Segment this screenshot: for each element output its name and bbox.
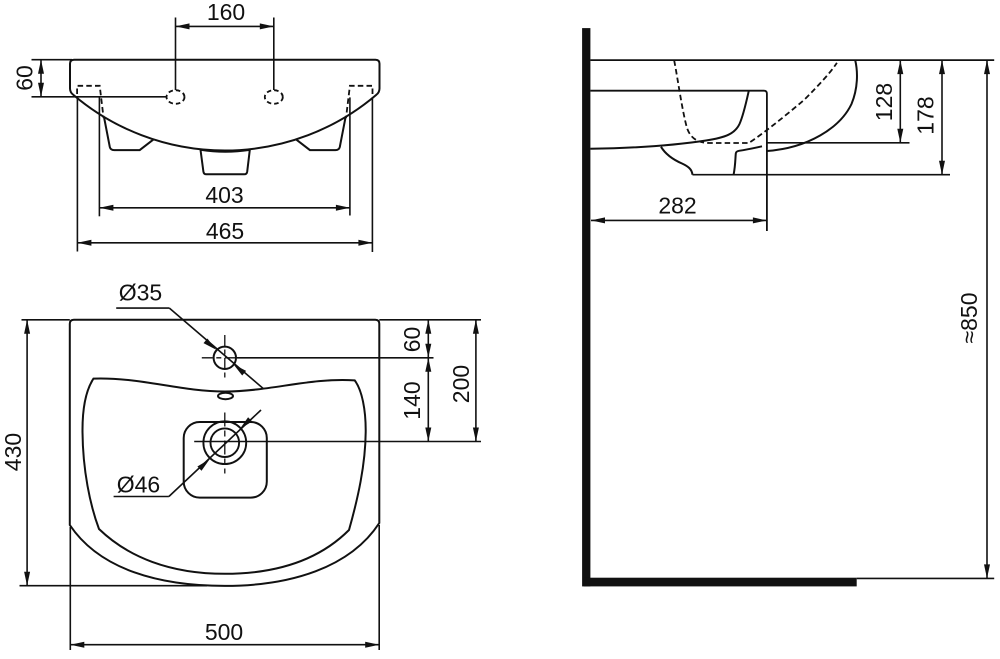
svg-text:200: 200	[448, 365, 474, 403]
svg-text:Ø46: Ø46	[117, 472, 160, 498]
svg-text:Ø35: Ø35	[119, 280, 162, 306]
svg-text:60: 60	[12, 65, 38, 91]
svg-text:178: 178	[912, 96, 938, 134]
svg-text:≈850: ≈850	[956, 293, 982, 344]
svg-text:60: 60	[399, 327, 425, 353]
svg-text:160: 160	[207, 0, 245, 25]
svg-text:465: 465	[206, 218, 244, 244]
svg-text:282: 282	[658, 193, 696, 219]
svg-text:140: 140	[399, 381, 425, 419]
svg-text:500: 500	[205, 619, 243, 645]
svg-text:128: 128	[871, 83, 897, 121]
svg-text:430: 430	[0, 433, 26, 471]
svg-text:403: 403	[205, 182, 243, 208]
